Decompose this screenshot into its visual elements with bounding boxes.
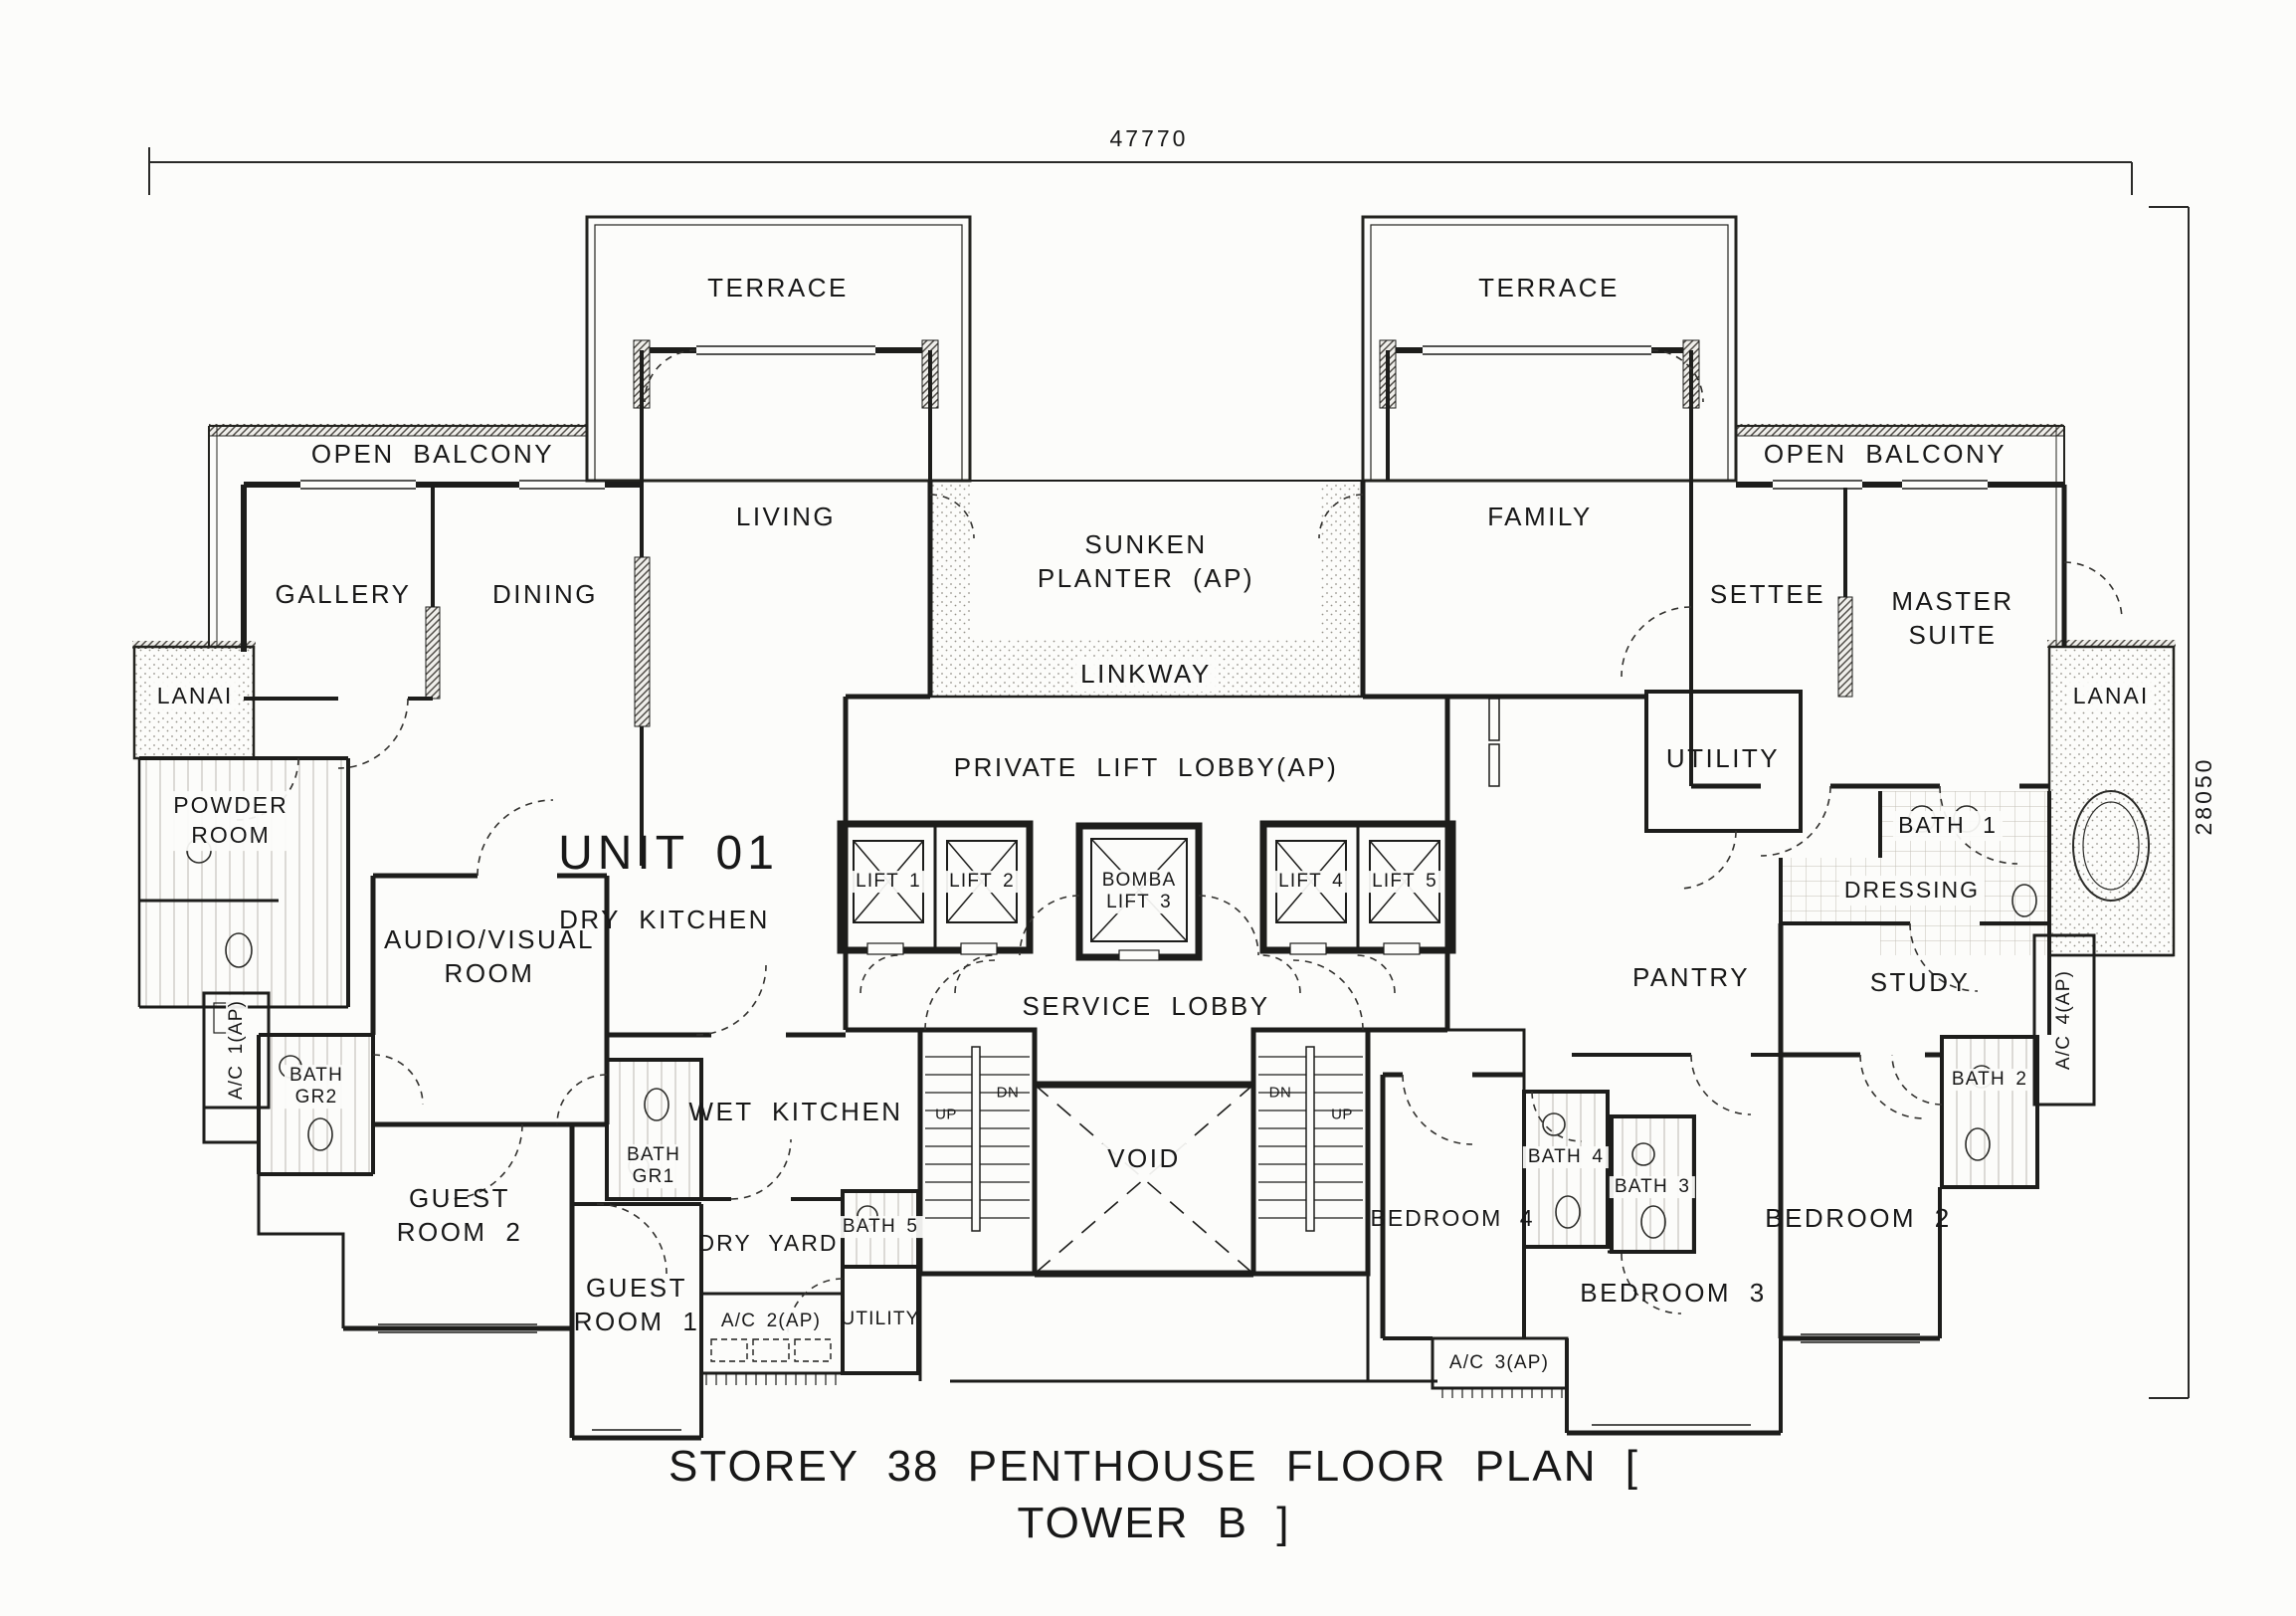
room-label-guest-room-2: GUEST ROOM 2 xyxy=(397,1182,523,1250)
core-label-lift-1: LIFT 1 xyxy=(851,871,926,893)
room-label-terrace-right: TERRACE xyxy=(1478,272,1620,305)
dimension-height-label: 28050 xyxy=(2190,757,2219,836)
core-label-bomba-lift-3: BOMBA LIFT 3 xyxy=(1097,870,1182,913)
ac-ledge-2-label: A/C 2(AP) xyxy=(716,1311,826,1332)
stair-right-up-label: UP xyxy=(1331,1105,1353,1124)
room-label-bedroom-4: BEDROOM 4 xyxy=(1370,1204,1534,1234)
room-label-bath-3: BATH 3 xyxy=(1610,1176,1695,1198)
room-label-bath-1: BATH 1 xyxy=(1893,811,2003,841)
room-label-lanai-right: LANAI xyxy=(2068,682,2154,711)
room-label-bath-4: BATH 4 xyxy=(1523,1146,1609,1168)
core-label-private-lift-lobby: PRIVATE LIFT LOBBY(AP) xyxy=(954,751,1339,785)
core-label-lift-2: LIFT 2 xyxy=(944,871,1020,893)
room-label-terrace-left: TERRACE xyxy=(707,272,849,305)
room-label-dry-yard: DRY YARD xyxy=(698,1229,839,1259)
plan-title: STOREY 38 PENTHOUSE FLOOR PLAN [ TOWER B… xyxy=(583,1438,1725,1551)
room-label-living: LIVING xyxy=(736,501,836,534)
room-label-powder-room: POWDER ROOM xyxy=(168,791,293,851)
room-label-bedroom-2: BEDROOM 2 xyxy=(1765,1202,1952,1236)
room-label-bath-gr2: BATH GR2 xyxy=(285,1065,348,1109)
ac-ledge-1-label: A/C 1(AP) xyxy=(226,995,248,1105)
dimension-width-label: 47770 xyxy=(1110,124,1189,154)
stair-left-up-label: UP xyxy=(935,1105,957,1124)
core-label-service-lobby: SERVICE LOBBY xyxy=(1022,990,1269,1024)
room-label-settee: SETTEE xyxy=(1710,578,1825,612)
ac-ledge-4-label: A/C 4(AP) xyxy=(2053,965,2075,1075)
room-label-open-balcony-left: OPEN BALCONY xyxy=(311,438,554,472)
room-label-master-suite: MASTER SUITE xyxy=(1891,585,2013,653)
room-label-guest-room-1: GUEST ROOM 1 xyxy=(574,1272,700,1339)
room-label-bedroom-3: BEDROOM 3 xyxy=(1580,1277,1767,1311)
stair-left-dn-label: DN xyxy=(997,1083,1020,1103)
room-label-bath-gr1: BATH GR1 xyxy=(622,1144,685,1188)
room-label-wet-kitchen: WET KITCHEN xyxy=(688,1096,902,1129)
ac-ledge-3-label: A/C 3(AP) xyxy=(1444,1352,1554,1374)
core-label-void: VOID xyxy=(1102,1142,1186,1176)
room-label-dressing: DRESSING xyxy=(1839,876,1985,906)
core-label-lift-5: LIFT 5 xyxy=(1367,871,1442,893)
room-label-utility-unit02: UTILITY xyxy=(1666,742,1780,776)
room-label-lanai-left: LANAI xyxy=(152,682,238,711)
core-label-lift-4: LIFT 4 xyxy=(1273,871,1349,893)
core-label-linkway: LINKWAY xyxy=(1075,658,1217,692)
room-label-dining: DINING xyxy=(492,578,598,612)
room-label-family: FAMILY xyxy=(1487,501,1593,534)
floor-plan-page: 47770 28050 TERRACE TERRACE OPEN BALCONY… xyxy=(0,0,2296,1616)
room-label-bath-5: BATH 5 xyxy=(838,1216,923,1238)
room-label-bath-2: BATH 2 xyxy=(1947,1069,2032,1091)
room-label-dry-kitchen: DRY KITCHEN xyxy=(559,904,770,937)
unit-01-label: UNIT 01 xyxy=(558,823,779,885)
core-label-sunken-planter: SUNKEN PLANTER (AP) xyxy=(1038,528,1254,596)
room-label-study: STUDY xyxy=(1870,966,1971,1000)
stair-right-dn-label: DN xyxy=(1269,1083,1292,1103)
room-label-open-balcony-right: OPEN BALCONY xyxy=(1764,438,2007,472)
room-label-gallery: GALLERY xyxy=(276,578,412,612)
room-label-pantry: PANTRY xyxy=(1632,961,1750,995)
room-label-utility-unit01: UTILITY xyxy=(841,1309,919,1330)
floor-plan-drawing xyxy=(0,0,2296,1616)
